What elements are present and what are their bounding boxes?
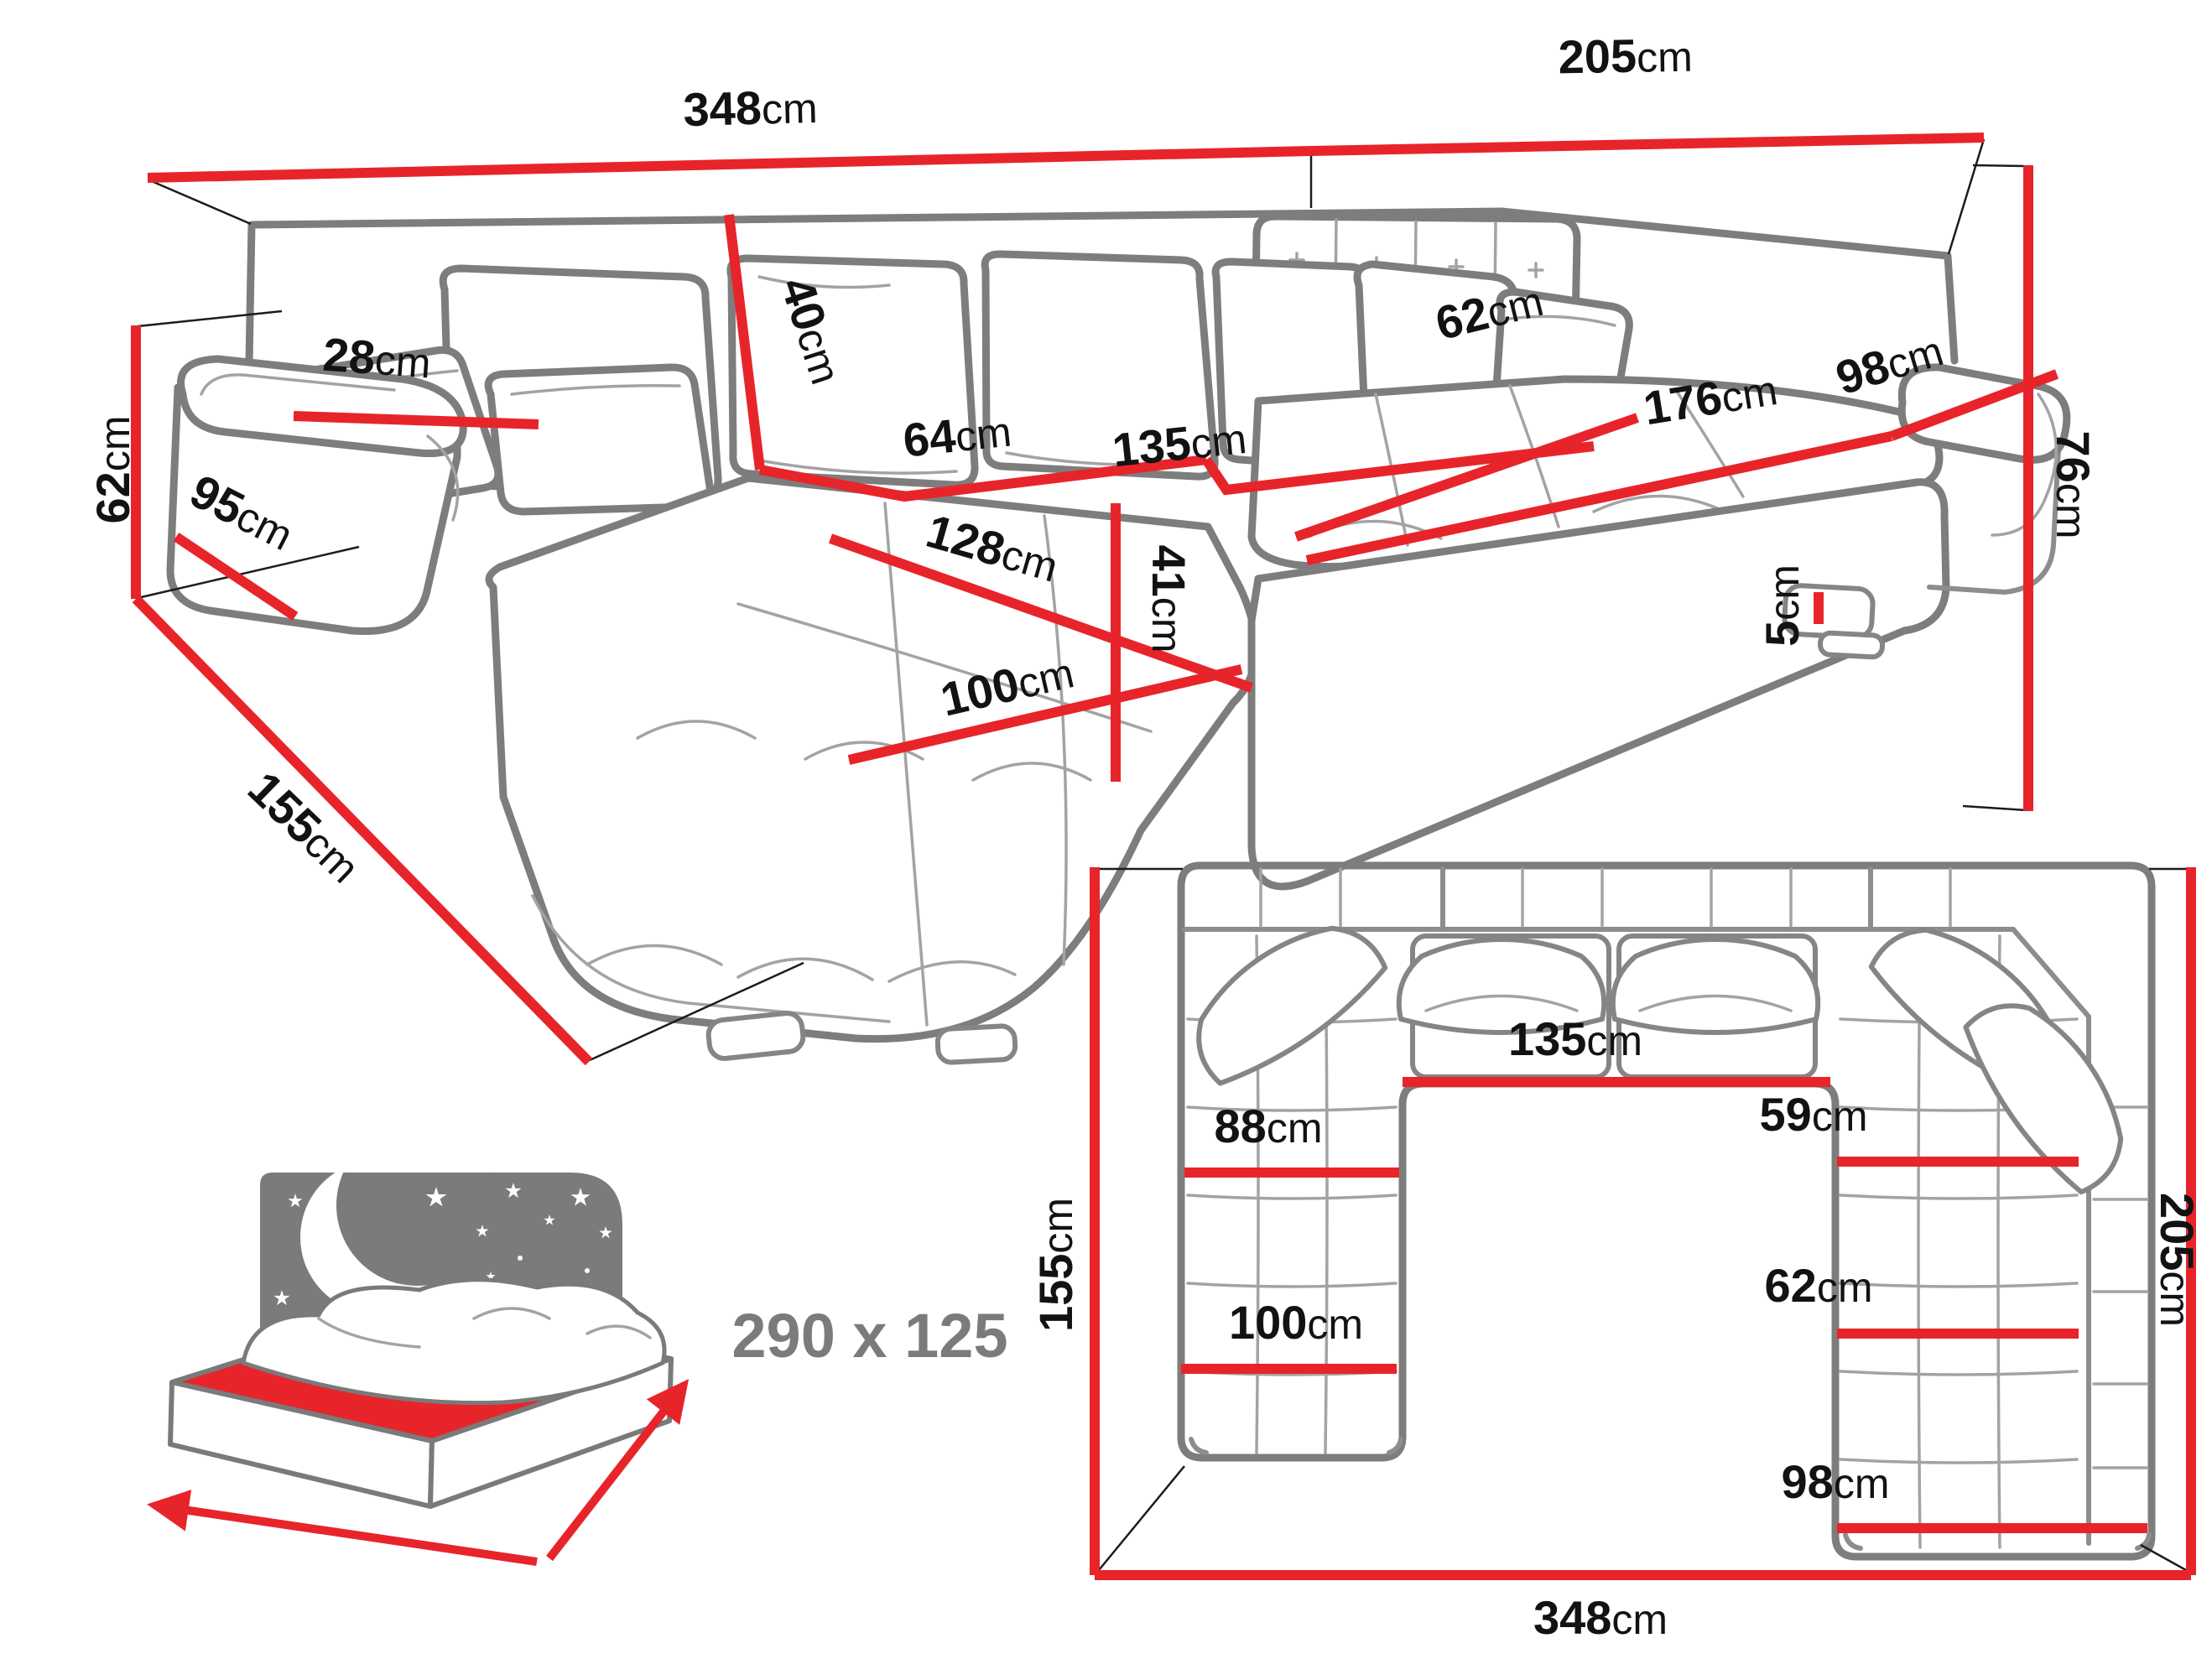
sleeping-area-icon: 290 x 125 [155, 1125, 1008, 1562]
sleeping-area-label: 290 x 125 [731, 1301, 1007, 1370]
sofa-leg [1819, 632, 1882, 658]
dim-label-depth-left: 155cm [238, 762, 372, 893]
plan-label-88: 88cm [1215, 1100, 1323, 1152]
plan-label-59: 59cm [1760, 1088, 1868, 1141]
plan-label-205: 205cm [2151, 1193, 2204, 1327]
dim-label-back-width: 348cm [683, 80, 819, 136]
dim-label-height-right: 76cm [2047, 431, 2100, 539]
sofa-dimensions-diagram: 348cm 205cm 76cm 62cm 155cm 95cm 28cm 40… [0, 0, 2212, 1659]
sofa-leg [707, 1012, 804, 1059]
plan-label-348: 348cm [1533, 1591, 1668, 1644]
dim-label-seat-h: 41cm [1142, 545, 1195, 653]
dim-label-height-left: 62cm [86, 416, 139, 524]
plan-pillow [1954, 980, 2147, 1201]
plan-label-155: 155cm [1029, 1198, 1082, 1332]
plan-label-135: 135cm [1508, 1012, 1642, 1065]
sofa-leg [937, 1026, 1016, 1064]
dimension-line-348 [148, 151, 1311, 178]
plan-pillow [1613, 939, 1818, 1032]
plan-label-98: 98cm [1782, 1455, 1890, 1508]
plan-label-100: 100cm [1229, 1296, 1363, 1349]
dimension-line-205 [1311, 138, 1984, 151]
width-arrow [155, 1506, 537, 1562]
plan-view: 155cm 205cm 348cm 135cm 88cm 100cm 59cm … [1029, 866, 2204, 1644]
dim-label-leg-h: 5cm [1756, 564, 1809, 647]
plan-label-62: 62cm [1765, 1259, 1873, 1312]
scatter-pillow [488, 367, 710, 512]
dim-label-armrest-top: 28cm [321, 328, 433, 388]
dim-label-right-width: 205cm [1558, 29, 1693, 84]
